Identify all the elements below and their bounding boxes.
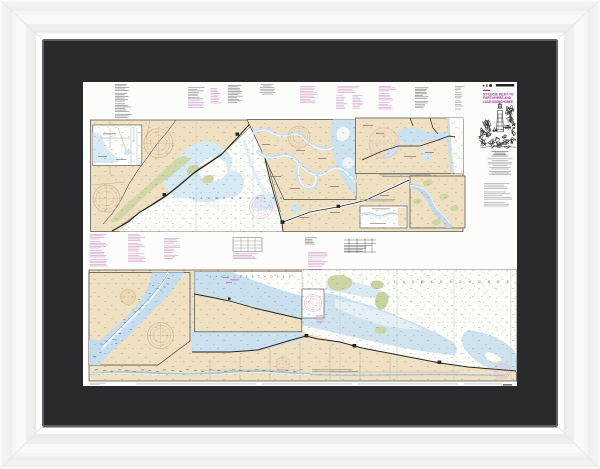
svg-text:LAKE OKEECHOBEE: LAKE OKEECHOBEE [483, 99, 513, 104]
